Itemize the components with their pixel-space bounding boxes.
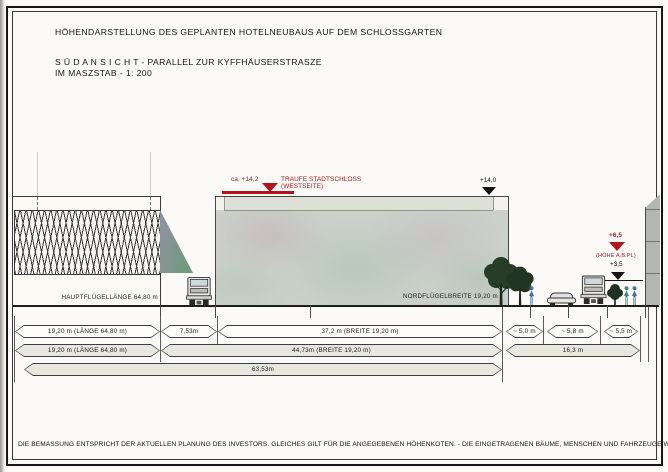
- traufe-label-line1: TRAUFE STADTSCHLOSS: [281, 176, 361, 183]
- street-joint: [530, 305, 531, 318]
- lower-height-triangle: [611, 272, 625, 280]
- street-joint: [310, 305, 311, 318]
- dimension-line: [160, 316, 161, 362]
- hotel-building-elevation: NORDFLÜGELBREITE 19,20 m: [215, 196, 509, 307]
- person-icon: [630, 286, 639, 306]
- dashed-line: [150, 197, 151, 210]
- truck-icon: [579, 274, 608, 305]
- dimension-band: 44,73m (BREITE 19,20 m): [161, 344, 502, 357]
- dimension-line: [543, 316, 544, 344]
- dimension-line: [600, 316, 601, 344]
- upper-height-value: +6,5: [609, 232, 622, 239]
- dimension-band: 16,3 m: [506, 344, 640, 357]
- drawing-subtitle: S Ü D A N S I C H T - PARALLEL ZUR KYFFH…: [55, 57, 322, 67]
- dimension-band: 7,53m: [161, 325, 217, 338]
- dimension-line: [502, 307, 503, 382]
- traufe-marker-triangle: [262, 183, 278, 192]
- footnote: DIE BEMASSUNG ENTSPRICHT DER AKTUELLEN P…: [18, 441, 668, 448]
- upper-height-label: (HÖHE A.B.PL): [596, 253, 636, 259]
- drawing-sheet: HÖHENDARSTELLUNG DES GEPLANTEN HOTELNEUB…: [0, 0, 668, 472]
- truck-icon: [183, 276, 215, 306]
- dimension-band: 63,53m: [24, 363, 502, 376]
- street-joint: [645, 305, 646, 318]
- dimension-band: 37,2 m (BREITE 19,20 m): [218, 325, 502, 338]
- dimension-line: [648, 307, 649, 362]
- dashed-line: [37, 197, 38, 210]
- bush-icon: [607, 283, 623, 306]
- extension-line: [37, 152, 38, 196]
- ground-line: [13, 305, 659, 307]
- traufe-reference-line: [222, 191, 294, 194]
- parapet-corner: [216, 197, 225, 210]
- main-wing-hatch: [14, 210, 161, 275]
- roof-height-value: +14,0: [480, 177, 496, 184]
- dimension-line: [217, 316, 218, 344]
- street-joint: [215, 305, 216, 318]
- traufe-label-line2: (WESTSEITE): [281, 183, 323, 190]
- upper-height-triangle: [609, 242, 625, 251]
- drawing-scale: IM MASZSTAB - 1: 200: [55, 68, 152, 78]
- main-wing-label: HAUPTFLÜGELLÄNGE 64,80 m: [62, 294, 159, 301]
- car-icon: [546, 291, 577, 306]
- street-joint: [568, 305, 569, 318]
- dimension-band: 19,20 m (LÄNGE 64,80 m): [15, 325, 160, 338]
- neighbor-building-edge: [645, 192, 660, 305]
- street-joint: [607, 305, 608, 318]
- dimension-band: ~ 5,8 m: [547, 325, 598, 338]
- person-icon: [527, 286, 536, 306]
- dimension-line: [640, 316, 641, 362]
- roof-height-triangle: [482, 187, 496, 195]
- lower-height-value: +3,5: [610, 261, 623, 268]
- parapet-corner: [493, 197, 508, 210]
- dimension-line: [14, 316, 15, 382]
- extension-line: [150, 152, 151, 196]
- traufe-value: ca. +14,2: [231, 176, 258, 183]
- page-title: HÖHENDARSTELLUNG DES GEPLANTEN HOTELNEUB…: [55, 27, 442, 37]
- dimension-band: 19,20 m (LÄNGE 64,80 m): [15, 344, 160, 357]
- parapet-band: [224, 197, 493, 211]
